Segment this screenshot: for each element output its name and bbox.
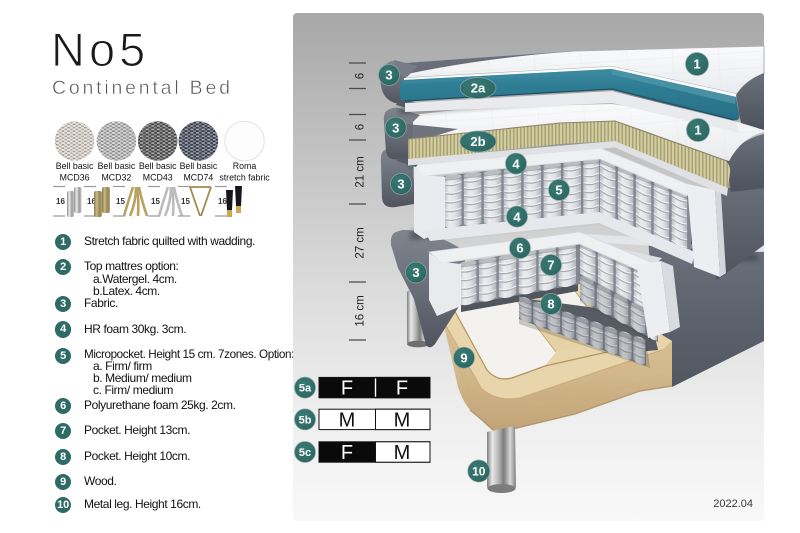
svg-text:1: 1 <box>694 123 701 138</box>
svg-text:1: 1 <box>693 57 700 72</box>
svg-text:5c: 5c <box>299 447 311 459</box>
svg-text:F: F <box>341 442 353 464</box>
svg-text:4: 4 <box>512 156 520 171</box>
svg-text:6: 6 <box>516 241 523 256</box>
svg-text:M: M <box>394 442 411 464</box>
svg-text:8: 8 <box>547 297 554 312</box>
svg-text:3: 3 <box>392 120 399 135</box>
svg-text:3: 3 <box>385 68 392 83</box>
svg-text:6: 6 <box>354 124 366 130</box>
svg-text:5b: 5b <box>299 414 312 426</box>
svg-text:4: 4 <box>513 209 521 224</box>
svg-text:10: 10 <box>472 464 486 478</box>
svg-text:3: 3 <box>412 265 419 280</box>
svg-text:7: 7 <box>547 258 554 273</box>
svg-text:2a: 2a <box>471 81 486 96</box>
svg-text:F: F <box>341 378 353 400</box>
svg-text:F: F <box>396 378 408 400</box>
svg-text:2022.04: 2022.04 <box>713 498 753 510</box>
svg-text:16 cm: 16 cm <box>354 295 366 326</box>
svg-text:M: M <box>394 409 411 431</box>
svg-text:21 cm: 21 cm <box>354 156 366 187</box>
svg-text:2b: 2b <box>470 134 485 149</box>
svg-text:9: 9 <box>460 350 467 365</box>
svg-text:5: 5 <box>555 183 562 198</box>
svg-text:27 cm: 27 cm <box>354 227 366 258</box>
svg-text:6: 6 <box>354 73 366 79</box>
svg-text:5a: 5a <box>299 383 312 395</box>
svg-text:3: 3 <box>397 177 404 192</box>
svg-text:M: M <box>339 409 356 431</box>
